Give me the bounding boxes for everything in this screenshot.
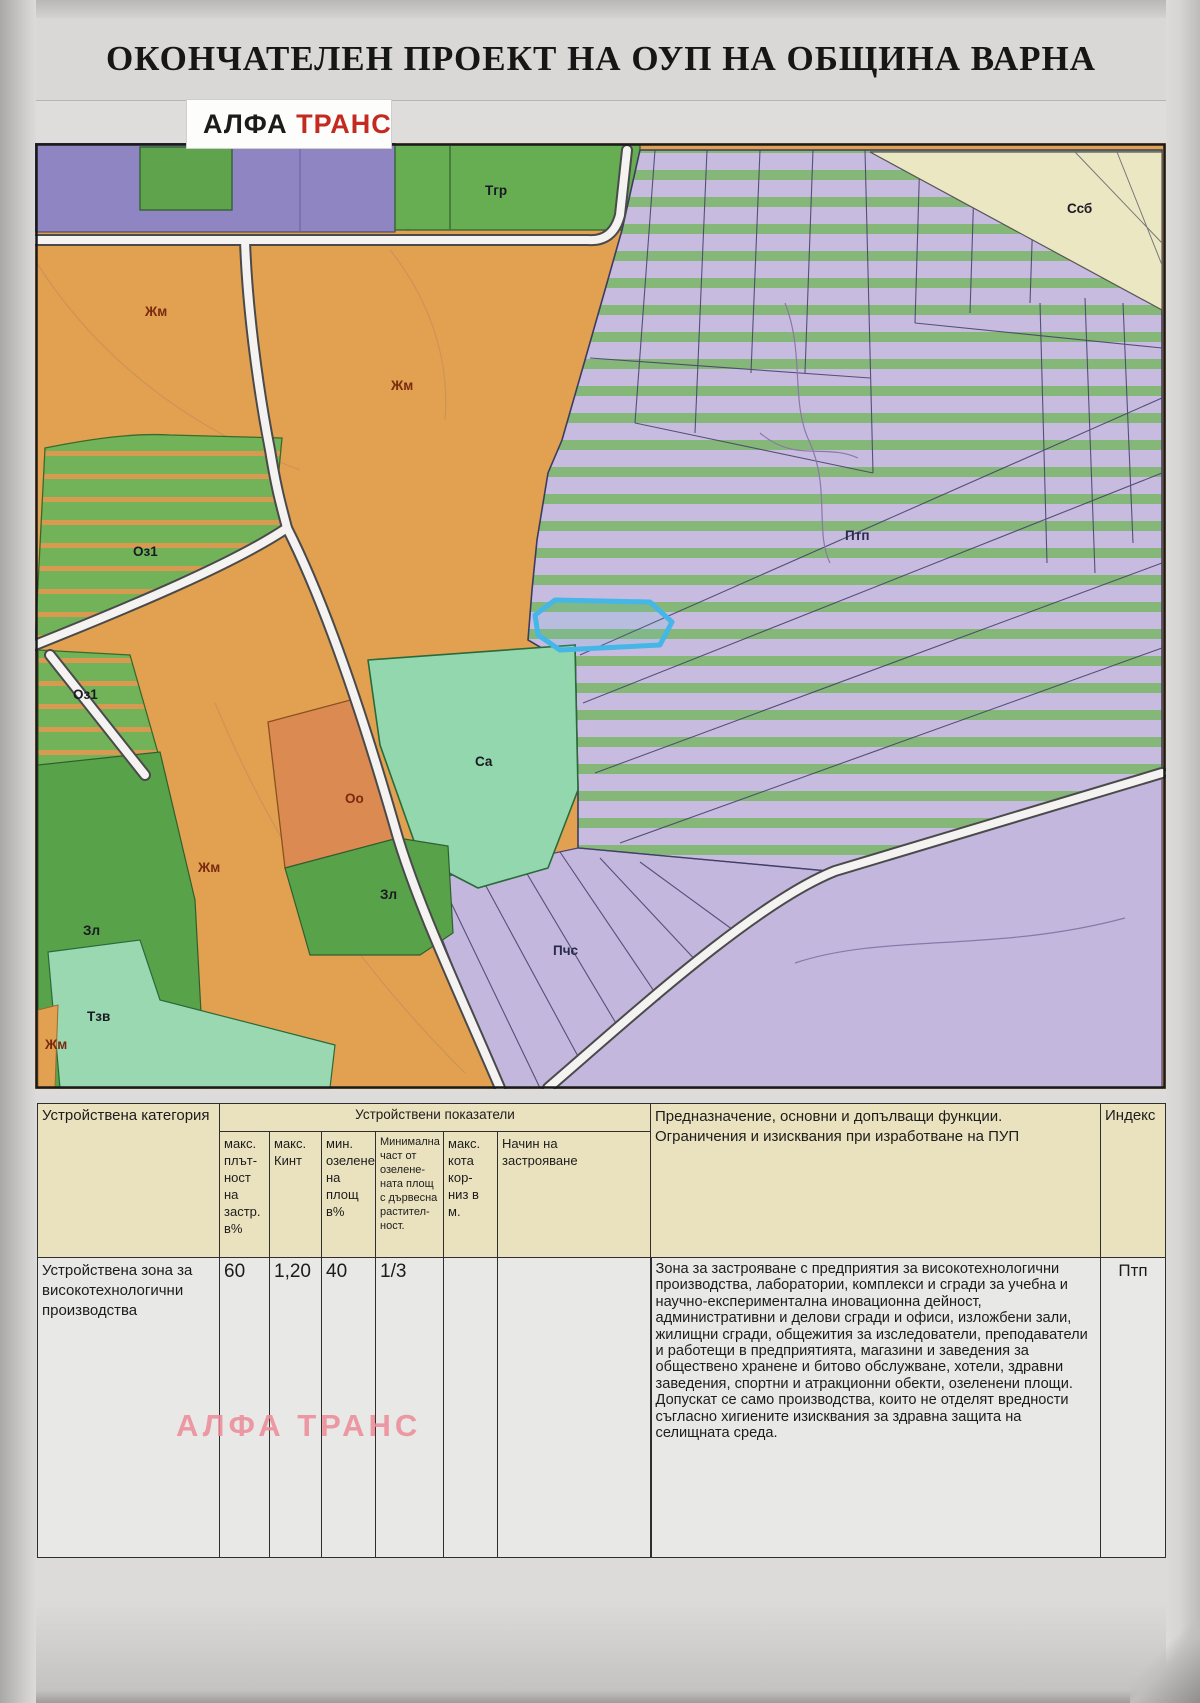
page-corner-fold	[1130, 1620, 1200, 1703]
header-category: Устройствена категория	[38, 1104, 220, 1258]
zone-label-Оз1-4: Оз1	[133, 544, 158, 559]
header-row-1: Устройствена категория Устройствени пока…	[38, 1104, 1166, 1132]
zone-label-Жм-13: Жм	[44, 1037, 67, 1052]
cell-max-height	[444, 1258, 498, 1558]
page-left-edge	[0, 0, 36, 1703]
header-purpose: Предназначение, основни и допълващи функ…	[651, 1104, 1101, 1258]
cell-building-mode	[498, 1258, 651, 1558]
header-max-height: макс. кота кор- низ в м.	[444, 1132, 498, 1258]
page-right-edge	[1166, 0, 1200, 1703]
header-min-green: мин. озелене на площ в%	[322, 1132, 376, 1258]
zone-label-Птп-6: Птп	[845, 528, 869, 543]
header-max-kint: макс. Кинт	[270, 1132, 322, 1258]
zone-label-Тгр-0: Тгр	[485, 183, 507, 198]
zone-label-Жм-3: Жм	[390, 378, 413, 393]
zone-label-Оо-8: Оо	[345, 791, 364, 806]
zoning-map-svg: ТгрСсбЖмЖмОз1Оз1ПтпСаОоЖмЗлЗлТзвЖмПчс	[35, 143, 1166, 1089]
zone-label-Тзв-12: Тзв	[87, 1009, 110, 1024]
zone-label-Са-7: Са	[475, 754, 493, 769]
zone-green-square	[140, 147, 232, 210]
header-max-density: макс. плът- ност на застр. в%	[220, 1132, 270, 1258]
zone-label-Зл-11: Зл	[83, 923, 100, 938]
header-building-mode: Начин на застрояване	[498, 1132, 651, 1258]
logo-text: АЛФА ТРАНС	[203, 109, 392, 140]
title-bar: ОКОНЧАТЕЛЕН ПРОЕКТ НА ОУП НА ОБЩИНА ВАРН…	[36, 18, 1166, 101]
highlighted-parcel-outline[interactable]	[535, 600, 672, 650]
zone-label-Оз1-5: Оз1	[73, 687, 98, 702]
page-title: ОКОНЧАТЕЛЕН ПРОЕКТ НА ОУП НА ОБЩИНА ВАРН…	[106, 39, 1096, 79]
watermark-alfa-trans: АЛФА ТРАНС	[176, 1408, 421, 1444]
zoning-table: Устройствена категория Устройствени пока…	[37, 1103, 1166, 1558]
logo-text-trans: ТРАНС	[296, 109, 392, 139]
zone-label-Зл-10: Зл	[380, 887, 397, 902]
zone-label-Пчс-14: Пчс	[553, 943, 579, 958]
logo-text-alfa: АЛФА	[203, 109, 288, 139]
alfa-trans-logo: АЛФА ТРАНС	[186, 99, 392, 149]
cell-index: Птп	[1101, 1258, 1166, 1558]
zone-tgr	[395, 145, 640, 230]
header-min-tree-part: Минимална част от озелене- ната площ с д…	[376, 1132, 444, 1258]
cell-purpose: Зона за застрояване с предприятия за вис…	[651, 1258, 1101, 1558]
zone-label-Ссб-1: Ссб	[1067, 201, 1092, 216]
zone-label-Жм-2: Жм	[144, 304, 167, 319]
header-index: Индекс	[1101, 1104, 1166, 1258]
header-indicators-group: Устройствени показатели	[220, 1104, 651, 1132]
zone-label-Жм-9: Жм	[197, 860, 220, 875]
zoning-map: ТгрСсбЖмЖмОз1Оз1ПтпСаОоЖмЗлЗлТзвЖмПчс	[35, 143, 1166, 1089]
